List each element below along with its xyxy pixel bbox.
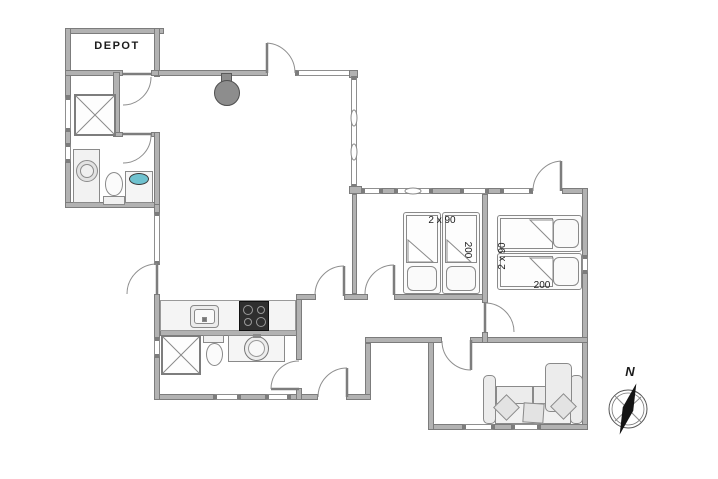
wall	[158, 70, 268, 76]
window	[511, 424, 541, 430]
burner-icon	[244, 318, 252, 326]
wall	[296, 388, 302, 400]
compass-icon	[609, 382, 647, 437]
shower-icon	[161, 335, 201, 375]
bedroom1-bed-length-label: 200	[461, 234, 473, 266]
window	[582, 255, 588, 274]
wall	[482, 332, 488, 343]
wood-stove-icon	[214, 80, 240, 106]
wall	[582, 188, 588, 256]
pillow-icon	[553, 219, 579, 248]
wall	[154, 357, 160, 400]
toilet-tank-icon	[203, 335, 224, 343]
depot-room-label: DEPOT	[78, 40, 156, 52]
wall	[394, 294, 488, 300]
bedroom2-bed-length-label: 200	[522, 280, 562, 292]
window	[213, 394, 241, 400]
toilet-bowl-icon	[105, 172, 123, 196]
wall	[296, 294, 302, 360]
faucet-icon	[202, 317, 207, 322]
window	[351, 76, 357, 188]
wall	[482, 337, 588, 343]
toilet-bowl-icon	[206, 343, 223, 366]
window	[361, 188, 383, 194]
floor-plan: DEPOT 2 x 90 200 2 x 90 200 N	[0, 0, 718, 479]
window	[500, 188, 533, 194]
wall	[482, 194, 488, 303]
wall	[65, 28, 164, 34]
washbasin-icon	[248, 340, 265, 357]
window	[462, 424, 495, 430]
pillow-icon	[446, 266, 476, 291]
bedroom1-bed-width-label: 2 x 90	[414, 215, 470, 227]
wall	[154, 394, 214, 400]
wall	[154, 132, 160, 207]
wall	[540, 424, 588, 430]
wall	[494, 424, 512, 430]
window	[65, 143, 71, 163]
wall	[240, 394, 266, 400]
wall	[352, 194, 357, 294]
wall	[365, 337, 442, 343]
washbasin-icon	[129, 173, 149, 185]
kitchen-counter	[160, 300, 296, 331]
faucet-icon	[253, 334, 261, 338]
pillow-icon	[407, 266, 437, 291]
window	[265, 394, 291, 400]
wall	[428, 337, 434, 430]
wall	[365, 343, 371, 400]
wall	[344, 294, 368, 300]
burner-icon	[243, 305, 253, 315]
wall	[290, 394, 318, 400]
shower-icon	[74, 94, 116, 136]
compass-north-label: N	[620, 366, 640, 378]
wall	[432, 188, 461, 194]
window	[154, 212, 160, 265]
toilet-tank-icon	[103, 196, 125, 205]
wall	[296, 294, 316, 300]
window	[154, 337, 160, 358]
wall	[65, 28, 71, 96]
bedroom2-bed-width-label: 2 x 90	[497, 234, 509, 278]
burner-icon	[257, 306, 265, 314]
window	[394, 188, 433, 194]
window	[295, 70, 353, 76]
burner-icon	[256, 317, 266, 327]
wall	[346, 394, 371, 400]
window	[65, 96, 71, 132]
sofa-pillow-icon	[522, 402, 544, 423]
washing-machine-drum-icon	[80, 164, 94, 178]
